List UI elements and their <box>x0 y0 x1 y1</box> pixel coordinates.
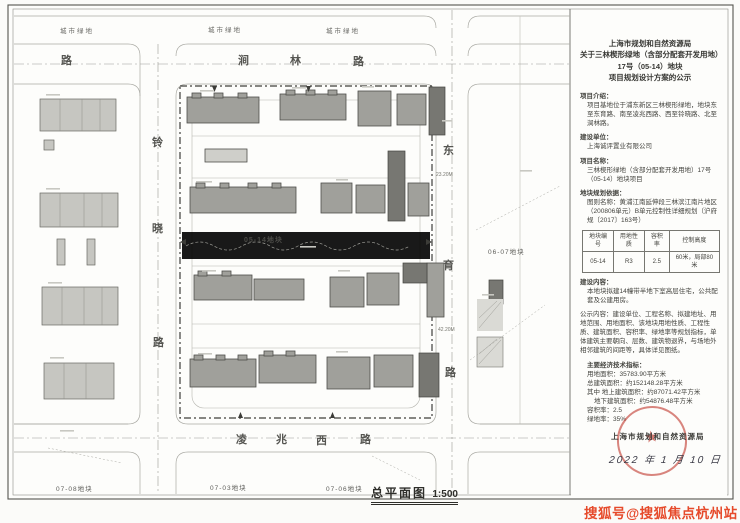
table-cell: 2.5 <box>644 252 669 273</box>
section-body: 图则名称：黄浦江南延伸段三林滨江南片地区（200806单元）B单元控制性详细规划… <box>580 198 720 225</box>
indicator-line: 地下建筑面积：约54876.48平方米 <box>580 397 720 406</box>
road-label-west: 铃 <box>152 134 163 150</box>
notice-title-line: 上海市规划和自然资源局 <box>580 38 720 49</box>
section-heading: 建设单位： <box>580 133 720 142</box>
watermark-text: 搜狐号@搜狐焦点杭州站 <box>584 502 738 522</box>
table-cell: R3 <box>613 252 644 273</box>
section-planning-basis: 地块规划依据： 图则名称：黄浦江南延伸段三林滨江南片地区（200806单元）B单… <box>580 189 720 225</box>
section-construction-content: 建设内容： 本地块拟建14幢带半地下室高层住宅，公共配套及公建用房。 <box>580 278 720 305</box>
road-label-north: 林 <box>290 52 301 68</box>
section-heading: 主要经济技术指标： <box>580 361 720 370</box>
road-label-north: 涧 <box>238 52 249 68</box>
road-label-south: 凌 <box>236 431 247 447</box>
indicator-line: 其中 地上建筑面积：约87071.42平方米 <box>580 388 720 397</box>
table-header: 控制高度 <box>669 231 719 252</box>
section-body: 项目基地位于浦东新区三林楔形绿地，地块东至东育路、南至凌兆西路、西至铃晓路、北至… <box>580 101 720 128</box>
parcel-label-site: 05-14地块 <box>244 235 283 245</box>
table-row: 05-14 R3 2.5 60米，局部80米 <box>583 252 720 273</box>
road-label-east: 东 <box>443 142 454 158</box>
green-strip <box>182 232 430 259</box>
road-label-west: 路 <box>153 334 164 350</box>
scanned-plan-notice: { "notice": { "title_line1": "上海市规划和自然资源… <box>0 0 740 523</box>
road-label-west: 晓 <box>152 220 163 236</box>
road-label-west-top: 路 <box>61 52 72 68</box>
parcel-label-sw: 07-08地块 <box>56 483 93 493</box>
green-space-label: 城市绿地 <box>60 25 94 35</box>
caption-title: 总平面图 <box>371 486 427 500</box>
parcel-label-s1: 07-03地块 <box>210 482 247 492</box>
section-project-name: 项目名称： 三林楔形绿地（含部分配套开发用地）17号（05-14）地块项目 <box>580 157 720 184</box>
table-header: 地块编号 <box>583 231 614 252</box>
table-cell: 05-14 <box>583 252 614 273</box>
road-label-north: 路 <box>353 53 364 69</box>
section-body: 公示内容：建设单位、工程名称、拟建地址、用地范围、用地面积、该地块用地性质、工程… <box>580 310 720 355</box>
green-space-label: 城市绿地 <box>326 25 360 35</box>
public-notice-panel: 上海市规划和自然资源局 关于三林楔形绿地（含部分配套开发用地） 17号（05-1… <box>571 10 727 497</box>
road-label-east: 育 <box>443 257 454 273</box>
section-heading: 项目名称： <box>580 157 720 166</box>
road-label-south: 西 <box>316 432 327 448</box>
issue-date: 2022 年 1 月 10 日 <box>608 454 722 468</box>
section-intro: 项目介绍： 项目基地位于浦东新区三林楔形绿地，地块东至东育路、南至凌兆西路、西至… <box>580 92 720 128</box>
road-label-south: 兆 <box>276 431 287 447</box>
dimension-annotation: 23.20M <box>436 172 453 178</box>
indicator-line: 用地面积：35783.90平方米 <box>580 370 720 379</box>
table-header-row: 地块编号 用地性质 容积率 控制高度 <box>583 231 720 252</box>
plot-index-table: 地块编号 用地性质 容积率 控制高度 05-14 R3 2.5 60米，局部80… <box>582 230 720 273</box>
table-header: 用地性质 <box>613 231 644 252</box>
notice-title-line: 关于三林楔形绿地（含部分配套开发用地） <box>580 49 720 60</box>
parcel-label-east: 06-07地块 <box>488 246 525 256</box>
section-developer: 建设单位： 上海诚评置业有限公司 <box>580 133 720 151</box>
road-label-south: 路 <box>360 431 371 447</box>
section-heading: 地块规划依据： <box>580 189 720 198</box>
section-publicity-content: 公示内容：建设单位、工程名称、拟建地址、用地范围、用地面积、该地块用地性质、工程… <box>580 310 720 355</box>
notice-title-line: 项目规划设计方案的公示 <box>580 72 720 83</box>
indicator-line: 总建筑面积：约152148.28平方米 <box>580 379 720 388</box>
issuing-authority: 上海市规划和自然资源局 <box>611 432 705 443</box>
section-body: 三林楔形绿地（含部分配套开发用地）17号（05-14）地块项目 <box>580 166 720 184</box>
notice-title: 上海市规划和自然资源局 关于三林楔形绿地（含部分配套开发用地） 17号（05-1… <box>580 38 720 83</box>
parcel-label-s2: 07-06地块 <box>326 483 363 493</box>
green-space-label: 城市绿地 <box>208 24 242 34</box>
section-heading: 建设内容： <box>580 278 720 287</box>
drawing-caption: 总平面图 1:500 <box>371 484 458 505</box>
notice-title-line: 17号（05-14）地块 <box>580 61 720 72</box>
dimension-annotation: 42.20M <box>438 327 455 333</box>
caption-scale: 1:500 <box>432 489 458 500</box>
section-body: 本地块拟建14幢带半地下室高层住宅，公共配套及公建用房。 <box>580 287 720 305</box>
road-label-east: 路 <box>445 364 456 380</box>
table-cell: 60米，局部80米 <box>669 252 719 273</box>
section-heading: 项目介绍： <box>580 92 720 101</box>
section-body: 上海诚评置业有限公司 <box>580 142 720 151</box>
table-header: 容积率 <box>644 231 669 252</box>
